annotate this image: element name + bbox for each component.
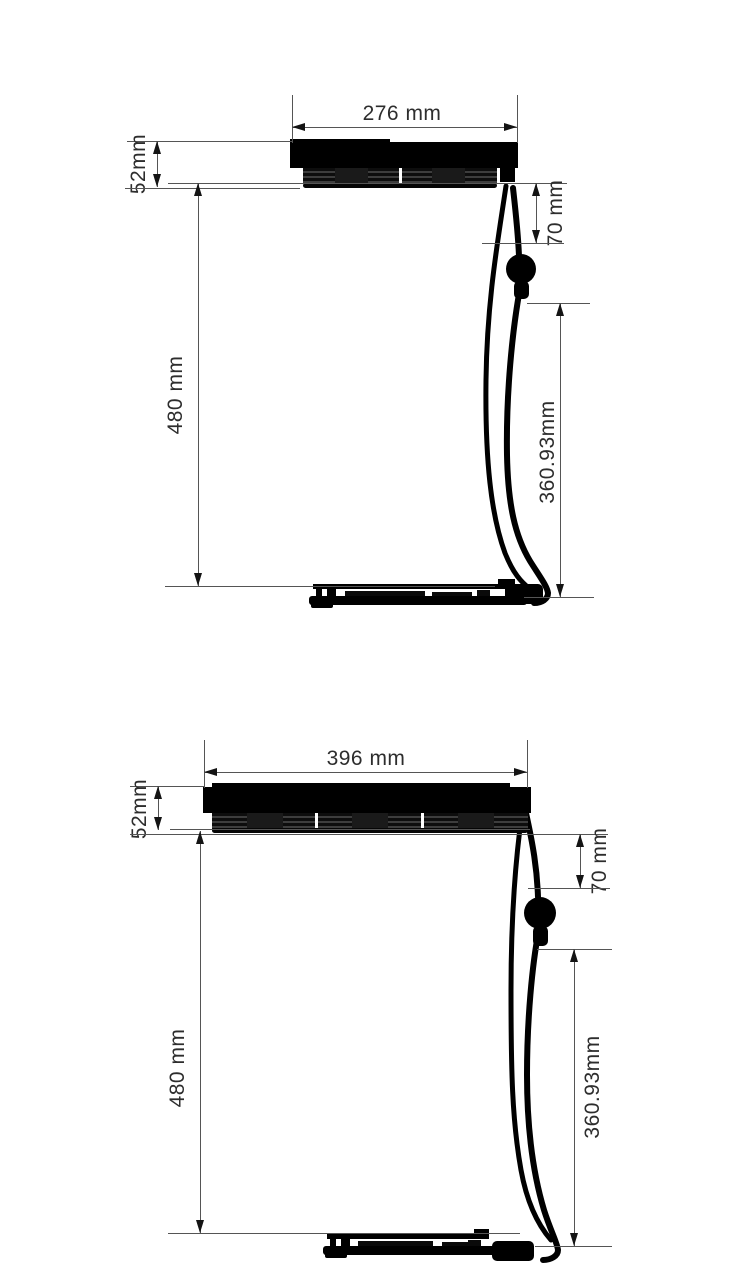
arrow-head xyxy=(194,183,202,196)
bracket-main-bar xyxy=(309,596,527,605)
arrow-head xyxy=(576,834,584,847)
dimension-line xyxy=(200,831,201,1233)
bracket-top-bar xyxy=(327,1234,489,1239)
extension-line xyxy=(165,586,495,587)
bracket-drop-label: 70 mm xyxy=(588,828,612,895)
arrow-head xyxy=(504,123,517,131)
extension-line xyxy=(528,888,610,889)
fan-hub xyxy=(335,168,368,183)
dimension-drawing-page: { "colors": { "background": "#ffffff", "… xyxy=(0,0,755,1285)
extension-line xyxy=(535,1246,612,1247)
bracket-drop-label: 70 mm xyxy=(544,180,568,247)
arrow-head xyxy=(570,1233,578,1246)
arrow-head xyxy=(154,786,162,799)
cable-gland xyxy=(500,166,515,182)
height-dimension-label: 52mm xyxy=(127,134,151,194)
fan-hub xyxy=(458,813,494,828)
ball-knob xyxy=(524,897,556,929)
bracket-main-bar xyxy=(323,1246,501,1255)
ball-knob xyxy=(506,254,536,284)
height-dimension-label: 52mm xyxy=(128,779,152,839)
arrow-head xyxy=(576,875,584,888)
arrow-head xyxy=(153,174,161,187)
fan-gap xyxy=(315,813,318,829)
fan-hub xyxy=(352,813,388,828)
extension-line xyxy=(292,95,293,143)
extension-line xyxy=(524,597,594,598)
light-housing xyxy=(290,142,518,168)
ball-knob-stem xyxy=(533,926,548,946)
arrow-head xyxy=(153,141,161,154)
ball-knob-stem xyxy=(514,281,529,299)
cable-length-label: 360.93mm xyxy=(581,1035,605,1138)
dimension-line xyxy=(560,303,561,597)
arrow-head xyxy=(532,183,540,196)
extension-line xyxy=(168,1233,520,1234)
extension-line xyxy=(517,95,518,143)
drop-dimension-label: 480 mm xyxy=(164,356,188,435)
datum-line xyxy=(125,188,300,189)
arrow-head xyxy=(154,817,162,830)
fixture-artwork-svg xyxy=(0,0,755,650)
dimension-line xyxy=(198,183,199,586)
arrow-head xyxy=(292,123,305,131)
arrow-head xyxy=(194,573,202,586)
extension-line xyxy=(482,243,564,244)
arrow-head xyxy=(556,584,564,597)
cable-connector xyxy=(492,1241,534,1261)
arrow-head xyxy=(514,768,527,776)
diagram-top: 276 mm 52mm 480 mm 70 mm 360.93mm xyxy=(0,0,755,650)
arrow-head xyxy=(196,831,204,844)
diagram-bottom: 396 mm 52mm 480 mm 70 mm 360.93mm xyxy=(0,650,755,1285)
datum-line xyxy=(170,829,530,830)
cable-length-label: 360.93mm xyxy=(536,400,560,503)
light-housing xyxy=(203,787,531,813)
fan-gap xyxy=(399,168,402,184)
arrow-head xyxy=(532,230,540,243)
extension-line xyxy=(127,141,292,142)
drop-dimension-label: 480 mm xyxy=(166,1029,190,1108)
bracket-foot xyxy=(325,1252,347,1258)
extension-line xyxy=(204,740,205,788)
extension-line xyxy=(527,740,528,788)
fixture-artwork-svg xyxy=(0,650,755,1285)
dimension-line xyxy=(292,127,517,128)
arrow-head xyxy=(556,303,564,316)
fan-hub xyxy=(247,813,283,828)
fan-hub xyxy=(432,168,465,183)
width-dimension-label: 276 mm xyxy=(363,102,442,126)
fan-gap xyxy=(421,813,424,829)
bracket-foot xyxy=(311,602,333,608)
arrow-head xyxy=(196,1220,204,1233)
arrow-head xyxy=(570,949,578,962)
knob-cable-upper xyxy=(513,188,519,256)
dimension-line xyxy=(574,949,575,1246)
datum-line xyxy=(168,183,567,184)
arrow-head xyxy=(204,768,217,776)
width-dimension-label: 396 mm xyxy=(327,747,406,771)
dimension-line xyxy=(204,772,527,773)
cable-connector xyxy=(505,584,543,604)
